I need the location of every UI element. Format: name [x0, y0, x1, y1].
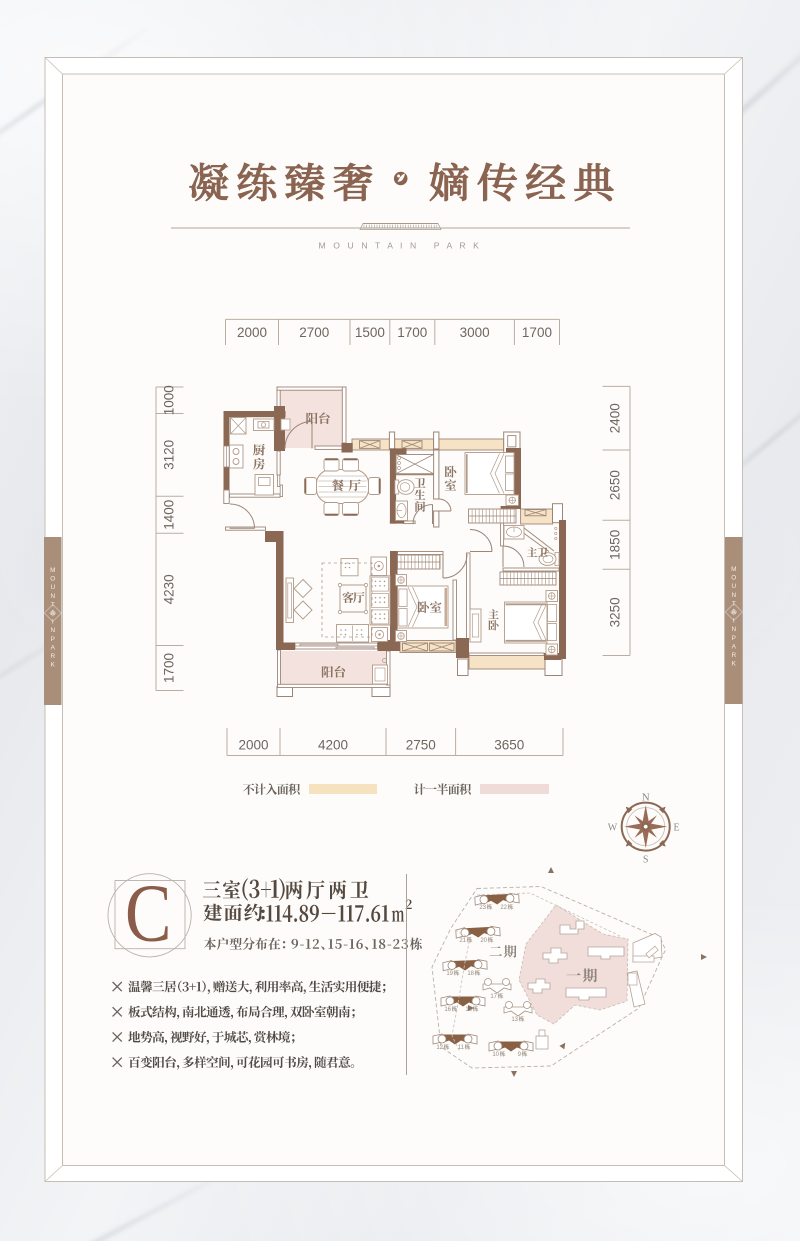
svg-text:A: A [732, 609, 737, 616]
svg-text:O: O [50, 576, 55, 583]
svg-text:22: 22 [500, 905, 507, 911]
svg-text:M: M [731, 566, 736, 573]
svg-text:W: W [608, 823, 618, 834]
svg-text:20: 20 [480, 938, 487, 944]
svg-text:1700: 1700 [397, 325, 427, 340]
svg-text:R: R [731, 652, 736, 659]
svg-text:3000: 3000 [460, 325, 490, 340]
svg-text:N: N [731, 626, 736, 633]
svg-text:U: U [731, 583, 736, 590]
svg-text:S: S [643, 855, 649, 866]
svg-text:P: P [732, 635, 736, 642]
svg-text:E: E [673, 823, 679, 834]
svg-text:N: N [642, 792, 650, 804]
svg-text:2000: 2000 [237, 325, 267, 340]
svg-text:4200: 4200 [318, 738, 348, 753]
svg-text:2400: 2400 [608, 403, 623, 433]
svg-text:K: K [51, 662, 56, 669]
svg-text:3250: 3250 [608, 597, 623, 627]
svg-text:3120: 3120 [162, 440, 177, 470]
svg-text:R: R [50, 653, 55, 660]
svg-text:13: 13 [511, 1017, 518, 1023]
svg-text:23: 23 [479, 905, 486, 911]
svg-text:I: I [733, 618, 735, 625]
svg-text:P: P [51, 636, 55, 643]
svg-text:T: T [732, 600, 736, 607]
svg-text:K: K [732, 661, 737, 668]
svg-text:A: A [51, 644, 56, 651]
svg-text:2700: 2700 [299, 325, 329, 340]
svg-text:I: I [52, 619, 54, 626]
svg-text:16: 16 [444, 1007, 451, 1013]
svg-text:U: U [50, 584, 55, 591]
svg-text:C: C [125, 867, 171, 959]
svg-text:19: 19 [446, 971, 453, 977]
svg-text:1850: 1850 [608, 530, 623, 560]
svg-text:N: N [731, 592, 736, 599]
svg-text:A: A [51, 610, 56, 617]
svg-text:2750: 2750 [406, 738, 436, 753]
svg-text:1000: 1000 [162, 385, 177, 415]
svg-text:1700: 1700 [162, 653, 177, 683]
svg-text:M: M [50, 567, 55, 574]
svg-text:M O U N T A I N P A R K: M O U N T A I N P A R K [319, 241, 482, 251]
svg-text:N: N [50, 627, 55, 634]
svg-text:2650: 2650 [608, 470, 623, 500]
svg-text:21: 21 [459, 938, 466, 944]
svg-text:2000: 2000 [238, 738, 268, 753]
svg-text:17: 17 [490, 994, 497, 1000]
svg-text:18: 18 [467, 971, 474, 977]
svg-text:1400: 1400 [162, 500, 177, 530]
svg-text:1500: 1500 [355, 325, 385, 340]
svg-text:3650: 3650 [494, 738, 524, 753]
svg-text:1700: 1700 [522, 325, 552, 340]
svg-text:10: 10 [492, 1052, 499, 1058]
svg-text:12: 12 [436, 1045, 443, 1051]
svg-text:N: N [50, 593, 55, 600]
svg-text:4230: 4230 [162, 574, 177, 604]
svg-text:A: A [732, 643, 737, 650]
svg-text:T: T [51, 601, 55, 608]
svg-text:11: 11 [458, 1045, 465, 1051]
svg-text:O: O [731, 575, 736, 582]
